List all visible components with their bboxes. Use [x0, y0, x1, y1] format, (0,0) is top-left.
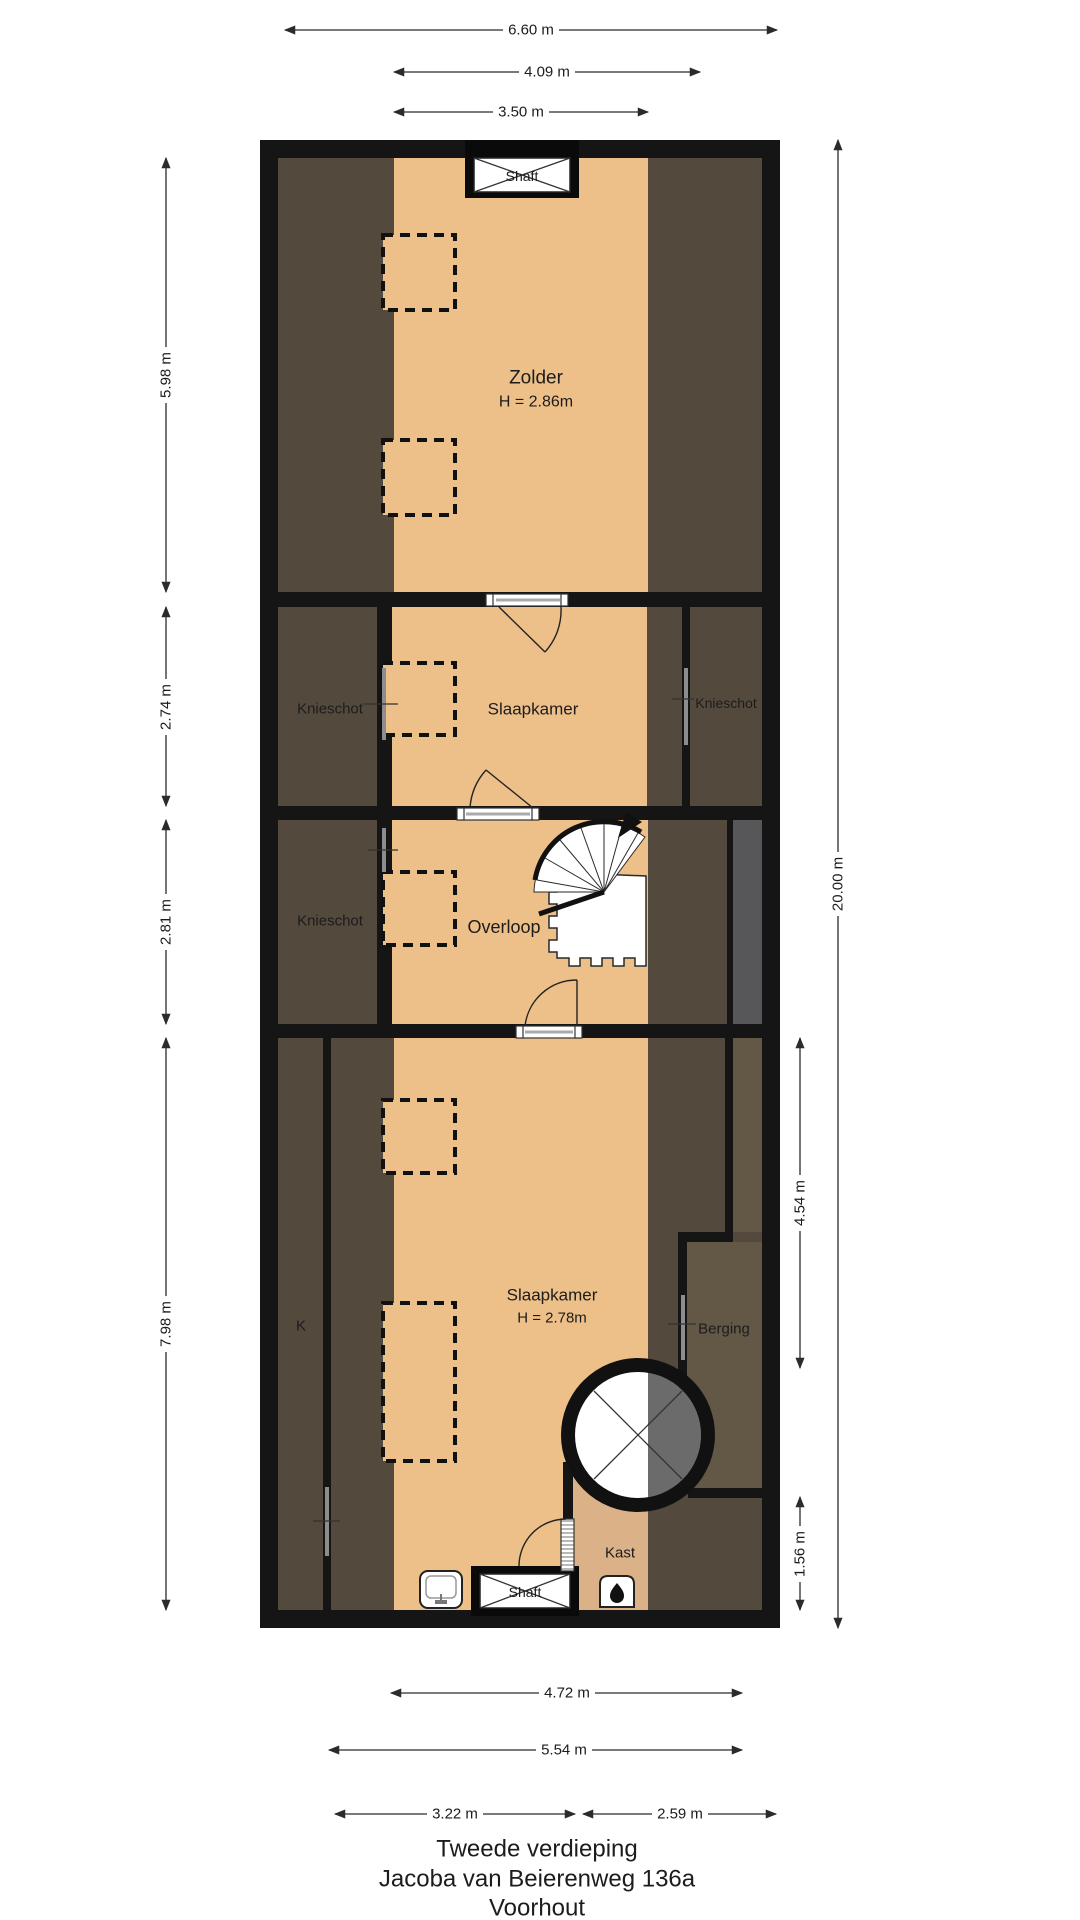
label-slaapkamer-bottom-height: H = 2.78m	[517, 1310, 587, 1327]
svg-text:4.54 m: 4.54 m	[792, 1180, 809, 1226]
duct-strip	[733, 820, 762, 1024]
dim-top-660: 6.60 m	[285, 21, 777, 39]
title-city: Voorhout	[489, 1895, 585, 1920]
label-knieschot-mid-right: Knieschot	[695, 695, 757, 711]
label-kast: Kast	[605, 1545, 636, 1562]
dim-bottom-322: 3.22 m	[335, 1805, 575, 1823]
svg-text:6.60 m: 6.60 m	[508, 22, 554, 39]
floorplan-page: Shaft Shaft	[0, 0, 1080, 1920]
svg-text:2.59 m: 2.59 m	[657, 1806, 703, 1823]
dormer-box-3	[383, 663, 455, 735]
sink-icon	[420, 1571, 462, 1608]
shaft-bottom: Shaft	[471, 1566, 579, 1616]
dim-right-156: 1.56 m	[791, 1497, 809, 1610]
shaft-top: Shaft	[465, 140, 579, 198]
dormer-box-1	[383, 235, 455, 310]
dim-bottom-472: 4.72 m	[391, 1684, 742, 1702]
dim-right-454: 4.54 m	[791, 1038, 809, 1368]
svg-text:2.81 m: 2.81 m	[158, 899, 175, 945]
svg-text:20.00 m: 20.00 m	[830, 857, 847, 911]
dim-bottom-259: 2.59 m	[583, 1805, 776, 1823]
dim-top-350: 3.50 m	[394, 103, 648, 121]
svg-text:5.98 m: 5.98 m	[158, 352, 175, 398]
zolder-low-ceiling-right	[648, 158, 762, 592]
berging-wall-upper	[725, 1038, 733, 1234]
zolder-low-ceiling-left	[278, 158, 394, 592]
label-slaapkamer-mid: Slaapkamer	[488, 700, 579, 719]
dormer-box-2	[383, 440, 455, 515]
title-floor: Tweede verdieping	[436, 1836, 637, 1863]
dim-left-598: 5.98 m	[157, 158, 175, 592]
label-knieschot-mid-left: Knieschot	[297, 701, 364, 718]
svg-text:5.54 m: 5.54 m	[541, 1742, 587, 1759]
label-k: K	[296, 1318, 306, 1335]
berging-bottom-wall	[688, 1488, 762, 1498]
label-slaapkamer-bottom: Slaapkamer	[507, 1286, 598, 1305]
dormer-box-5	[383, 1100, 455, 1173]
title-address: Jacoba van Beierenweg 136a	[379, 1866, 696, 1893]
boiler-icon	[600, 1576, 634, 1607]
dim-left-281: 2.81 m	[157, 820, 175, 1024]
label-zolder-height: H = 2.86m	[499, 394, 573, 411]
dim-top-409: 4.09 m	[394, 63, 700, 81]
title-block: Tweede verdieping Jacoba van Beierenweg …	[379, 1836, 696, 1920]
round-stair-void	[568, 1365, 708, 1505]
dormer-box-4	[383, 872, 455, 945]
label-knieschot-overloop: Knieschot	[297, 913, 364, 930]
overloop-right-wall	[727, 820, 733, 1024]
dim-left-274: 2.74 m	[157, 607, 175, 806]
svg-text:7.98 m: 7.98 m	[158, 1301, 175, 1347]
svg-text:2.74 m: 2.74 m	[158, 684, 175, 730]
slaapkamer-mid-low-strip	[647, 607, 682, 806]
shaft-top-label: Shaft	[506, 168, 539, 184]
label-berging: Berging	[698, 1321, 750, 1338]
overloop-low-strip	[648, 820, 727, 1024]
shaft-bottom-label: Shaft	[509, 1584, 542, 1600]
berging-wall-jog	[678, 1232, 733, 1242]
svg-text:4.72 m: 4.72 m	[544, 1685, 590, 1702]
berging-upper-area	[733, 1038, 762, 1232]
svg-text:3.22 m: 3.22 m	[432, 1806, 478, 1823]
dim-bottom-554: 5.54 m	[329, 1741, 742, 1759]
dim-right-2000: 20.00 m	[829, 140, 847, 1628]
floorplan-drawing: Shaft Shaft	[0, 0, 1080, 1920]
svg-text:4.09 m: 4.09 m	[524, 64, 570, 81]
label-overloop: Overloop	[467, 917, 540, 937]
svg-text:1.56 m: 1.56 m	[792, 1531, 809, 1577]
label-zolder: Zolder	[509, 368, 564, 389]
dim-left-798: 7.98 m	[157, 1038, 175, 1610]
svg-text:3.50 m: 3.50 m	[498, 104, 544, 121]
dormer-box-6	[383, 1303, 455, 1461]
